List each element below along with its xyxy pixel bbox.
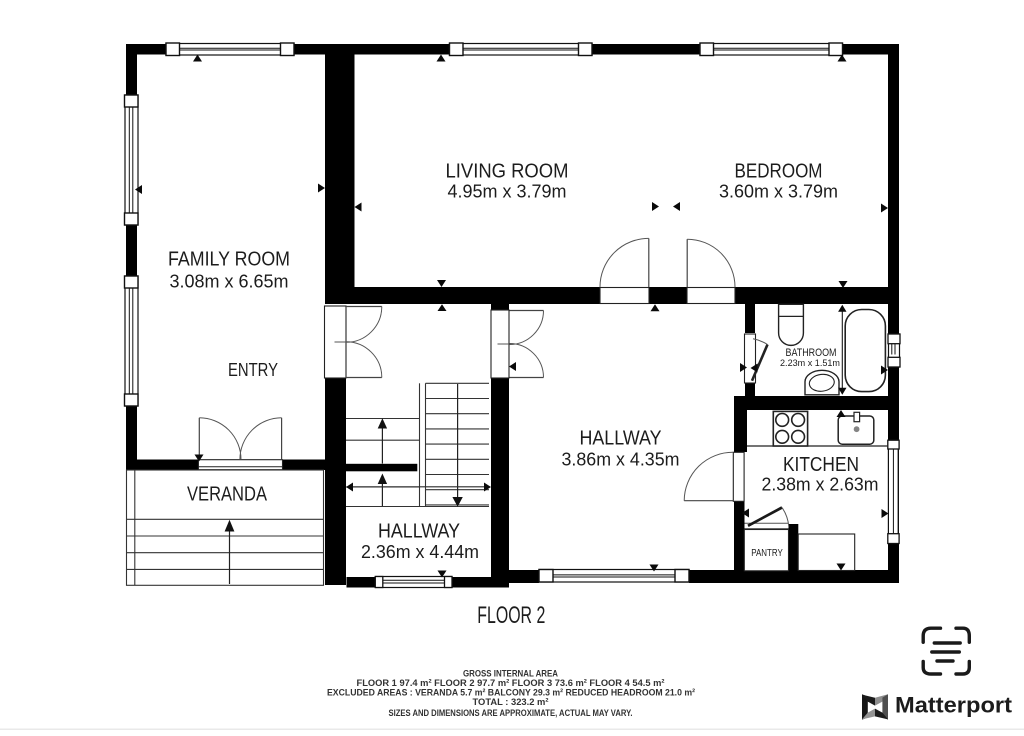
- svg-text:BEDROOM: BEDROOM: [735, 161, 823, 183]
- svg-text:HALLWAY: HALLWAY: [580, 428, 662, 450]
- svg-text:2.23m x 1.51m: 2.23m x 1.51m: [780, 358, 840, 369]
- svg-text:ENTRY: ENTRY: [228, 360, 278, 380]
- svg-text:PANTRY: PANTRY: [751, 547, 783, 559]
- svg-text:TOTAL : 323.2 m²: TOTAL : 323.2 m²: [473, 697, 549, 708]
- svg-text:2.38m x 2.63m: 2.38m x 2.63m: [762, 474, 879, 495]
- svg-text:LIVING ROOM: LIVING ROOM: [446, 161, 569, 183]
- svg-text:FAMILY ROOM: FAMILY ROOM: [168, 249, 290, 271]
- svg-text:2.36m x 4.44m: 2.36m x 4.44m: [361, 541, 479, 562]
- svg-text:3.86m x 4.35m: 3.86m x 4.35m: [562, 449, 680, 470]
- svg-text:HALLWAY: HALLWAY: [378, 521, 460, 543]
- svg-text:FLOOR 2: FLOOR 2: [477, 602, 545, 629]
- svg-text:3.08m x 6.65m: 3.08m x 6.65m: [170, 271, 289, 292]
- svg-text:Matterport: Matterport: [895, 693, 1013, 718]
- svg-text:3.60m x 3.79m: 3.60m x 3.79m: [719, 181, 838, 202]
- svg-text:4.95m x 3.79m: 4.95m x 3.79m: [448, 181, 567, 202]
- svg-text:VERANDA: VERANDA: [187, 484, 268, 506]
- svg-text:SIZES AND DIMENSIONS ARE APPRO: SIZES AND DIMENSIONS ARE APPROXIMATE, AC…: [389, 708, 633, 719]
